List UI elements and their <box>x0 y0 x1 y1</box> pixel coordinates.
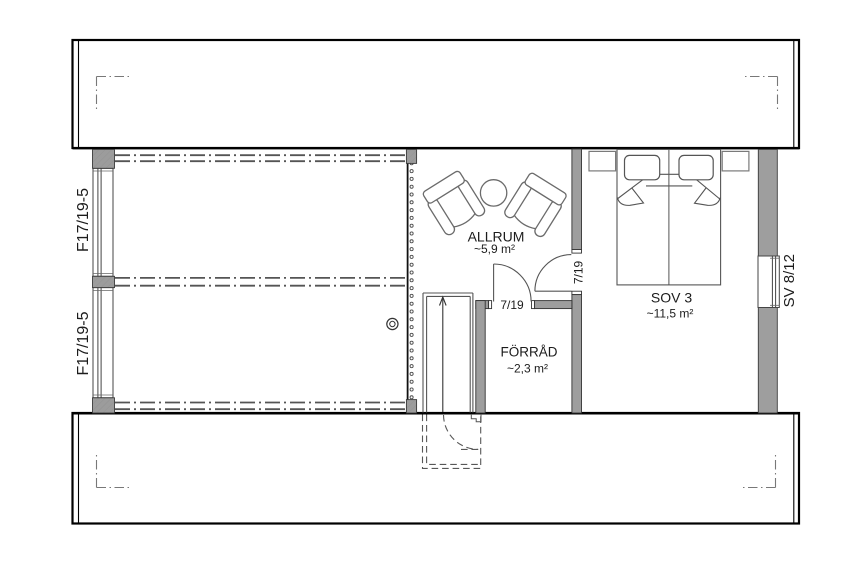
svg-text:F17/19-5: F17/19-5 <box>75 188 92 252</box>
svg-text:FÖRRÅD: FÖRRÅD <box>501 345 558 360</box>
svg-text:7/19: 7/19 <box>500 298 524 312</box>
svg-text:SOV 3: SOV 3 <box>651 290 692 306</box>
svg-text:F17/19-5: F17/19-5 <box>75 311 92 375</box>
svg-text:~5,9 m²: ~5,9 m² <box>474 242 515 256</box>
svg-text:~11,5 m²: ~11,5 m² <box>647 307 694 321</box>
svg-text:~2,3 m²: ~2,3 m² <box>507 362 548 376</box>
svg-text:7/19: 7/19 <box>572 260 586 284</box>
svg-text:SV 8/12: SV 8/12 <box>781 254 798 307</box>
